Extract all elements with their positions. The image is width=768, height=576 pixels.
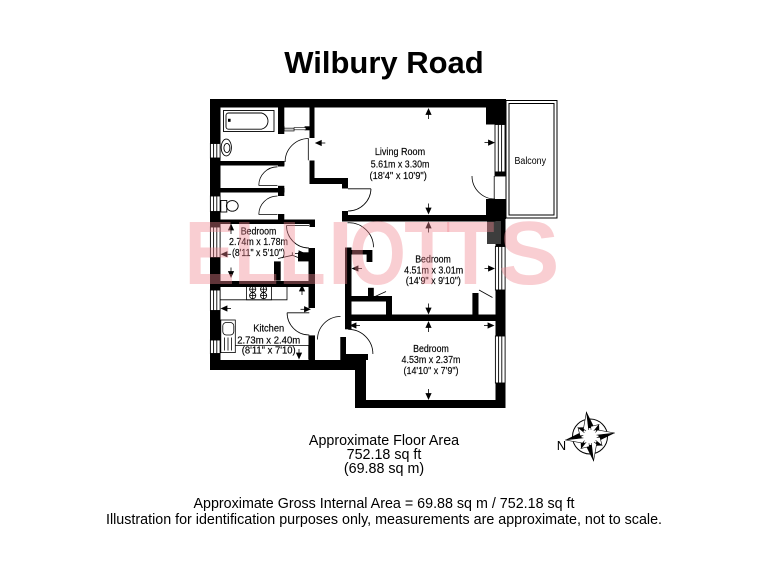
svg-text:L: L	[234, 204, 278, 304]
svg-text:Living Room: Living Room	[375, 147, 425, 158]
svg-text:N: N	[557, 438, 566, 453]
svg-text:(14'10" x 7'9"): (14'10" x 7'9")	[404, 366, 459, 377]
svg-text:E: E	[185, 204, 235, 304]
svg-text:Illustration for identificatio: Illustration for identification purposes…	[106, 512, 662, 528]
svg-text:T: T	[404, 204, 450, 304]
svg-text:(18'4" x 10'9"): (18'4" x 10'9")	[370, 171, 427, 182]
svg-text:O: O	[349, 204, 406, 304]
svg-text:T: T	[446, 204, 494, 304]
svg-text:Wilbury Road: Wilbury Road	[284, 45, 484, 80]
svg-text:S: S	[498, 204, 559, 304]
svg-text:L: L	[279, 204, 326, 304]
svg-text:Bedroom: Bedroom	[413, 344, 449, 355]
svg-text:(69.88 sq m): (69.88 sq m)	[344, 461, 424, 477]
svg-text:5.61m x 3.30m: 5.61m x 3.30m	[371, 160, 430, 171]
svg-text:(8'11" x 7'10): (8'11" x 7'10)	[242, 345, 296, 356]
svg-text:Kitchen: Kitchen	[253, 323, 284, 334]
svg-text:4.53m x 2.37m: 4.53m x 2.37m	[402, 355, 461, 366]
svg-text:Balcony: Balcony	[515, 156, 547, 167]
svg-text:Approximate Gross Internal Are: Approximate Gross Internal Area = 69.88 …	[193, 496, 574, 512]
